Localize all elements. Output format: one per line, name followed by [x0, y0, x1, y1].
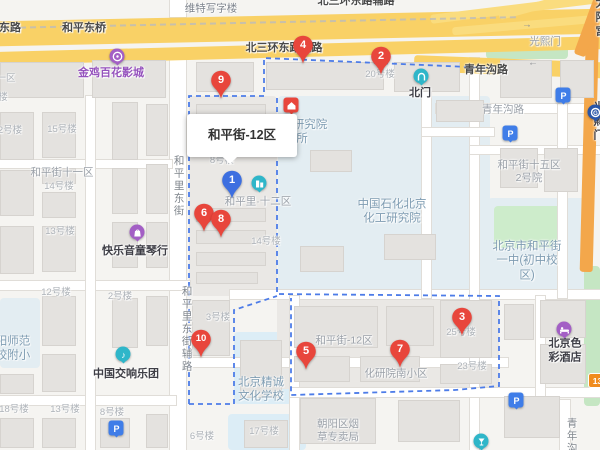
svg-text:G: G [593, 110, 598, 116]
parking-icon[interactable]: P [509, 393, 524, 408]
house-icon[interactable] [284, 98, 299, 113]
building [300, 398, 376, 444]
building [504, 304, 534, 340]
marker-number: 9 [210, 74, 232, 86]
area-fill [0, 298, 40, 368]
parking-icon[interactable]: P [109, 421, 124, 436]
marker-9[interactable]: 9 [210, 70, 232, 102]
building [42, 296, 76, 346]
building [0, 62, 84, 98]
hotel-icon[interactable] [557, 322, 572, 339]
building [42, 226, 76, 272]
poi-pointer [513, 407, 519, 410]
marker-2[interactable]: 2 [370, 46, 392, 78]
orchestra-icon[interactable]: ♪ [116, 347, 131, 362]
road [422, 58, 431, 298]
svg-text:P: P [513, 396, 519, 406]
building [196, 252, 266, 266]
marker-number: 8 [210, 213, 232, 225]
marker-number: 3 [451, 311, 473, 323]
building [42, 354, 76, 392]
poi-pointer [560, 102, 566, 105]
community-icon[interactable] [252, 176, 267, 191]
orchestra-icon[interactable]: ♪ [116, 347, 131, 364]
building [500, 148, 538, 188]
selection-popup-pointer [223, 157, 237, 164]
subway-station-icon[interactable]: G [588, 105, 600, 122]
building [300, 246, 344, 272]
drink-icon[interactable] [474, 434, 489, 450]
svg-text:P: P [507, 129, 513, 139]
building [266, 62, 384, 90]
svg-text:♪: ♪ [121, 350, 126, 360]
community-icon[interactable] [252, 176, 267, 193]
building [112, 168, 138, 214]
marker-number: 5 [295, 345, 317, 357]
building [146, 296, 168, 346]
poi-pointer [134, 239, 140, 242]
building [42, 168, 76, 184]
poi-pointer [592, 119, 598, 122]
parking-icon[interactable]: P [556, 88, 571, 105]
selection-popup-title: 和平街-12区 [187, 114, 297, 157]
road [422, 128, 494, 136]
parking-icon[interactable]: P [503, 126, 518, 143]
map-canvas[interactable]: 东路和平东桥北三环东路辅路北三环东路辅路青年沟路太阳宫维特写字楼光熙门青年沟路青… [0, 0, 600, 450]
building [42, 418, 76, 448]
marker-number: 2 [370, 50, 392, 62]
gate-icon[interactable] [414, 69, 429, 84]
building [146, 104, 168, 156]
cinema-icon[interactable] [110, 49, 125, 66]
road [560, 400, 570, 450]
poi-pointer [256, 190, 262, 193]
building [0, 112, 34, 160]
marker-7[interactable]: 7 [389, 339, 411, 371]
hotel-icon[interactable] [557, 322, 572, 337]
building [436, 100, 484, 122]
poi-pointer [114, 63, 120, 66]
road-arrow: → [522, 20, 532, 31]
marker-8[interactable]: 8 [210, 209, 232, 241]
building [146, 414, 168, 448]
drink-icon[interactable] [474, 434, 489, 449]
building [310, 150, 352, 172]
building [500, 60, 552, 98]
poi-pointer [120, 361, 126, 364]
poi-pointer [113, 435, 119, 438]
marker-number: 7 [389, 343, 411, 355]
marker-number: 4 [292, 39, 314, 51]
road [558, 104, 567, 298]
house-icon[interactable] [284, 98, 299, 115]
parking-icon[interactable]: P [503, 126, 518, 141]
selection-popup[interactable]: 和平街-12区 [187, 114, 297, 157]
building [42, 112, 76, 158]
building [112, 298, 138, 348]
building [112, 102, 138, 160]
subway-line-badge: 13 [588, 373, 600, 388]
gate-icon[interactable] [414, 69, 429, 86]
svg-text:P: P [560, 91, 566, 101]
building [440, 364, 492, 384]
building [92, 60, 166, 98]
parking-icon[interactable]: P [556, 88, 571, 103]
road-arrow: ← [486, 68, 496, 79]
marker-number: 10 [190, 333, 212, 344]
building [244, 420, 288, 448]
building [398, 400, 460, 442]
building [42, 192, 76, 218]
building [0, 170, 34, 216]
road-arrow: ← [528, 58, 538, 69]
shop-icon[interactable] [130, 225, 145, 242]
shop-icon[interactable] [130, 225, 145, 240]
marker-number: 1 [221, 174, 243, 186]
marker-3[interactable]: 3 [451, 307, 473, 339]
map-label: 6号楼 [190, 431, 214, 443]
road [0, 281, 190, 290]
map-label: 中国交响乐团 [93, 368, 159, 382]
building [146, 164, 168, 214]
subway-station-icon[interactable]: G [588, 105, 600, 120]
area-fill [494, 206, 566, 248]
poi-pointer [561, 336, 567, 339]
map-label: 18号楼 [0, 404, 29, 416]
building [0, 374, 34, 394]
map-label: 维特写字楼 [185, 2, 238, 15]
building [544, 148, 578, 192]
road-arrow: ↓ [563, 355, 568, 366]
marker-5[interactable]: 5 [295, 341, 317, 373]
road [170, 0, 186, 17]
parking-icon[interactable]: P [109, 421, 124, 438]
marker-1[interactable]: 1 [221, 170, 243, 202]
building [240, 340, 282, 398]
svg-text:P: P [113, 424, 119, 434]
marker-10[interactable]: 10 [190, 329, 212, 361]
marker-4[interactable]: 4 [292, 35, 314, 67]
building [146, 222, 168, 268]
parking-icon[interactable]: P [509, 393, 524, 410]
cinema-icon[interactable] [110, 49, 125, 64]
building [0, 418, 34, 448]
map-label: 北三环东路辅路 [318, 0, 395, 9]
building [0, 226, 34, 274]
map-label: 13号楼 [50, 404, 80, 416]
road [86, 96, 95, 450]
road [170, 56, 186, 450]
building [196, 272, 258, 284]
poi-pointer [418, 83, 424, 86]
poi-pointer [507, 140, 513, 143]
building [384, 234, 436, 260]
